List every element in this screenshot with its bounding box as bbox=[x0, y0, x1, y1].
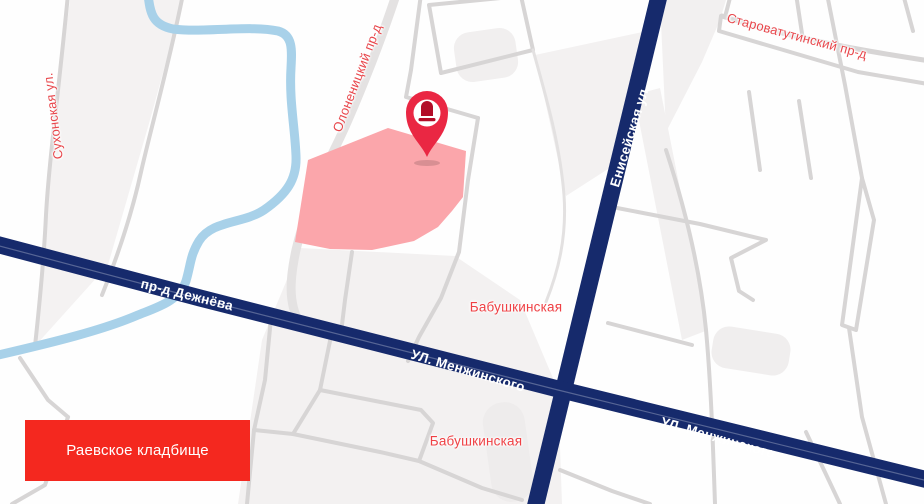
place-label[interactable]: Раевское кладбище bbox=[25, 420, 250, 481]
map-canvas[interactable]: Сухонская ул. Олоненицкий пр-д Старовату… bbox=[0, 0, 924, 504]
cemetery-area[interactable] bbox=[295, 128, 466, 250]
